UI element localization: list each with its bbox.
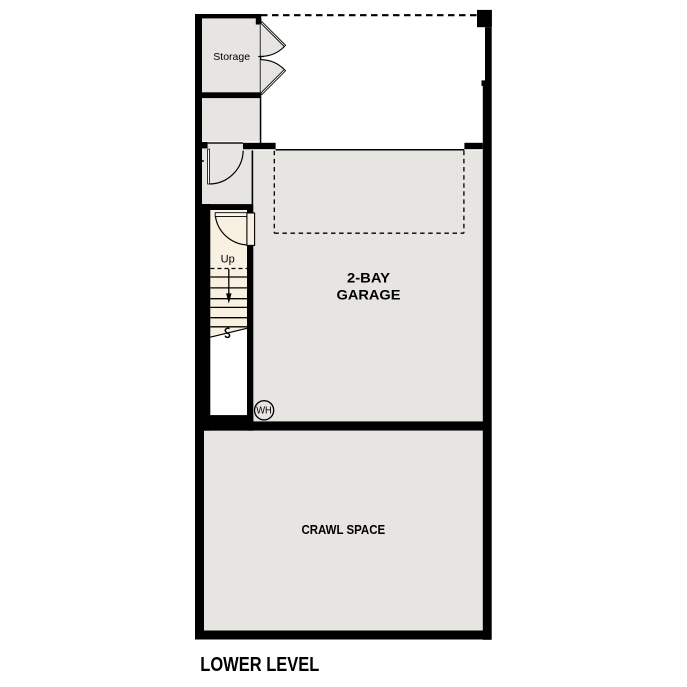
svg-text:LOWER LEVEL: LOWER LEVEL	[200, 654, 319, 676]
svg-text:2-BAY: 2-BAY	[347, 270, 391, 286]
svg-text:CRAWL SPACE: CRAWL SPACE	[301, 523, 385, 537]
svg-text:WH: WH	[256, 406, 272, 417]
svg-text:GARAGE: GARAGE	[337, 286, 401, 302]
svg-text:Up: Up	[221, 254, 235, 266]
svg-text:Storage: Storage	[213, 51, 250, 63]
